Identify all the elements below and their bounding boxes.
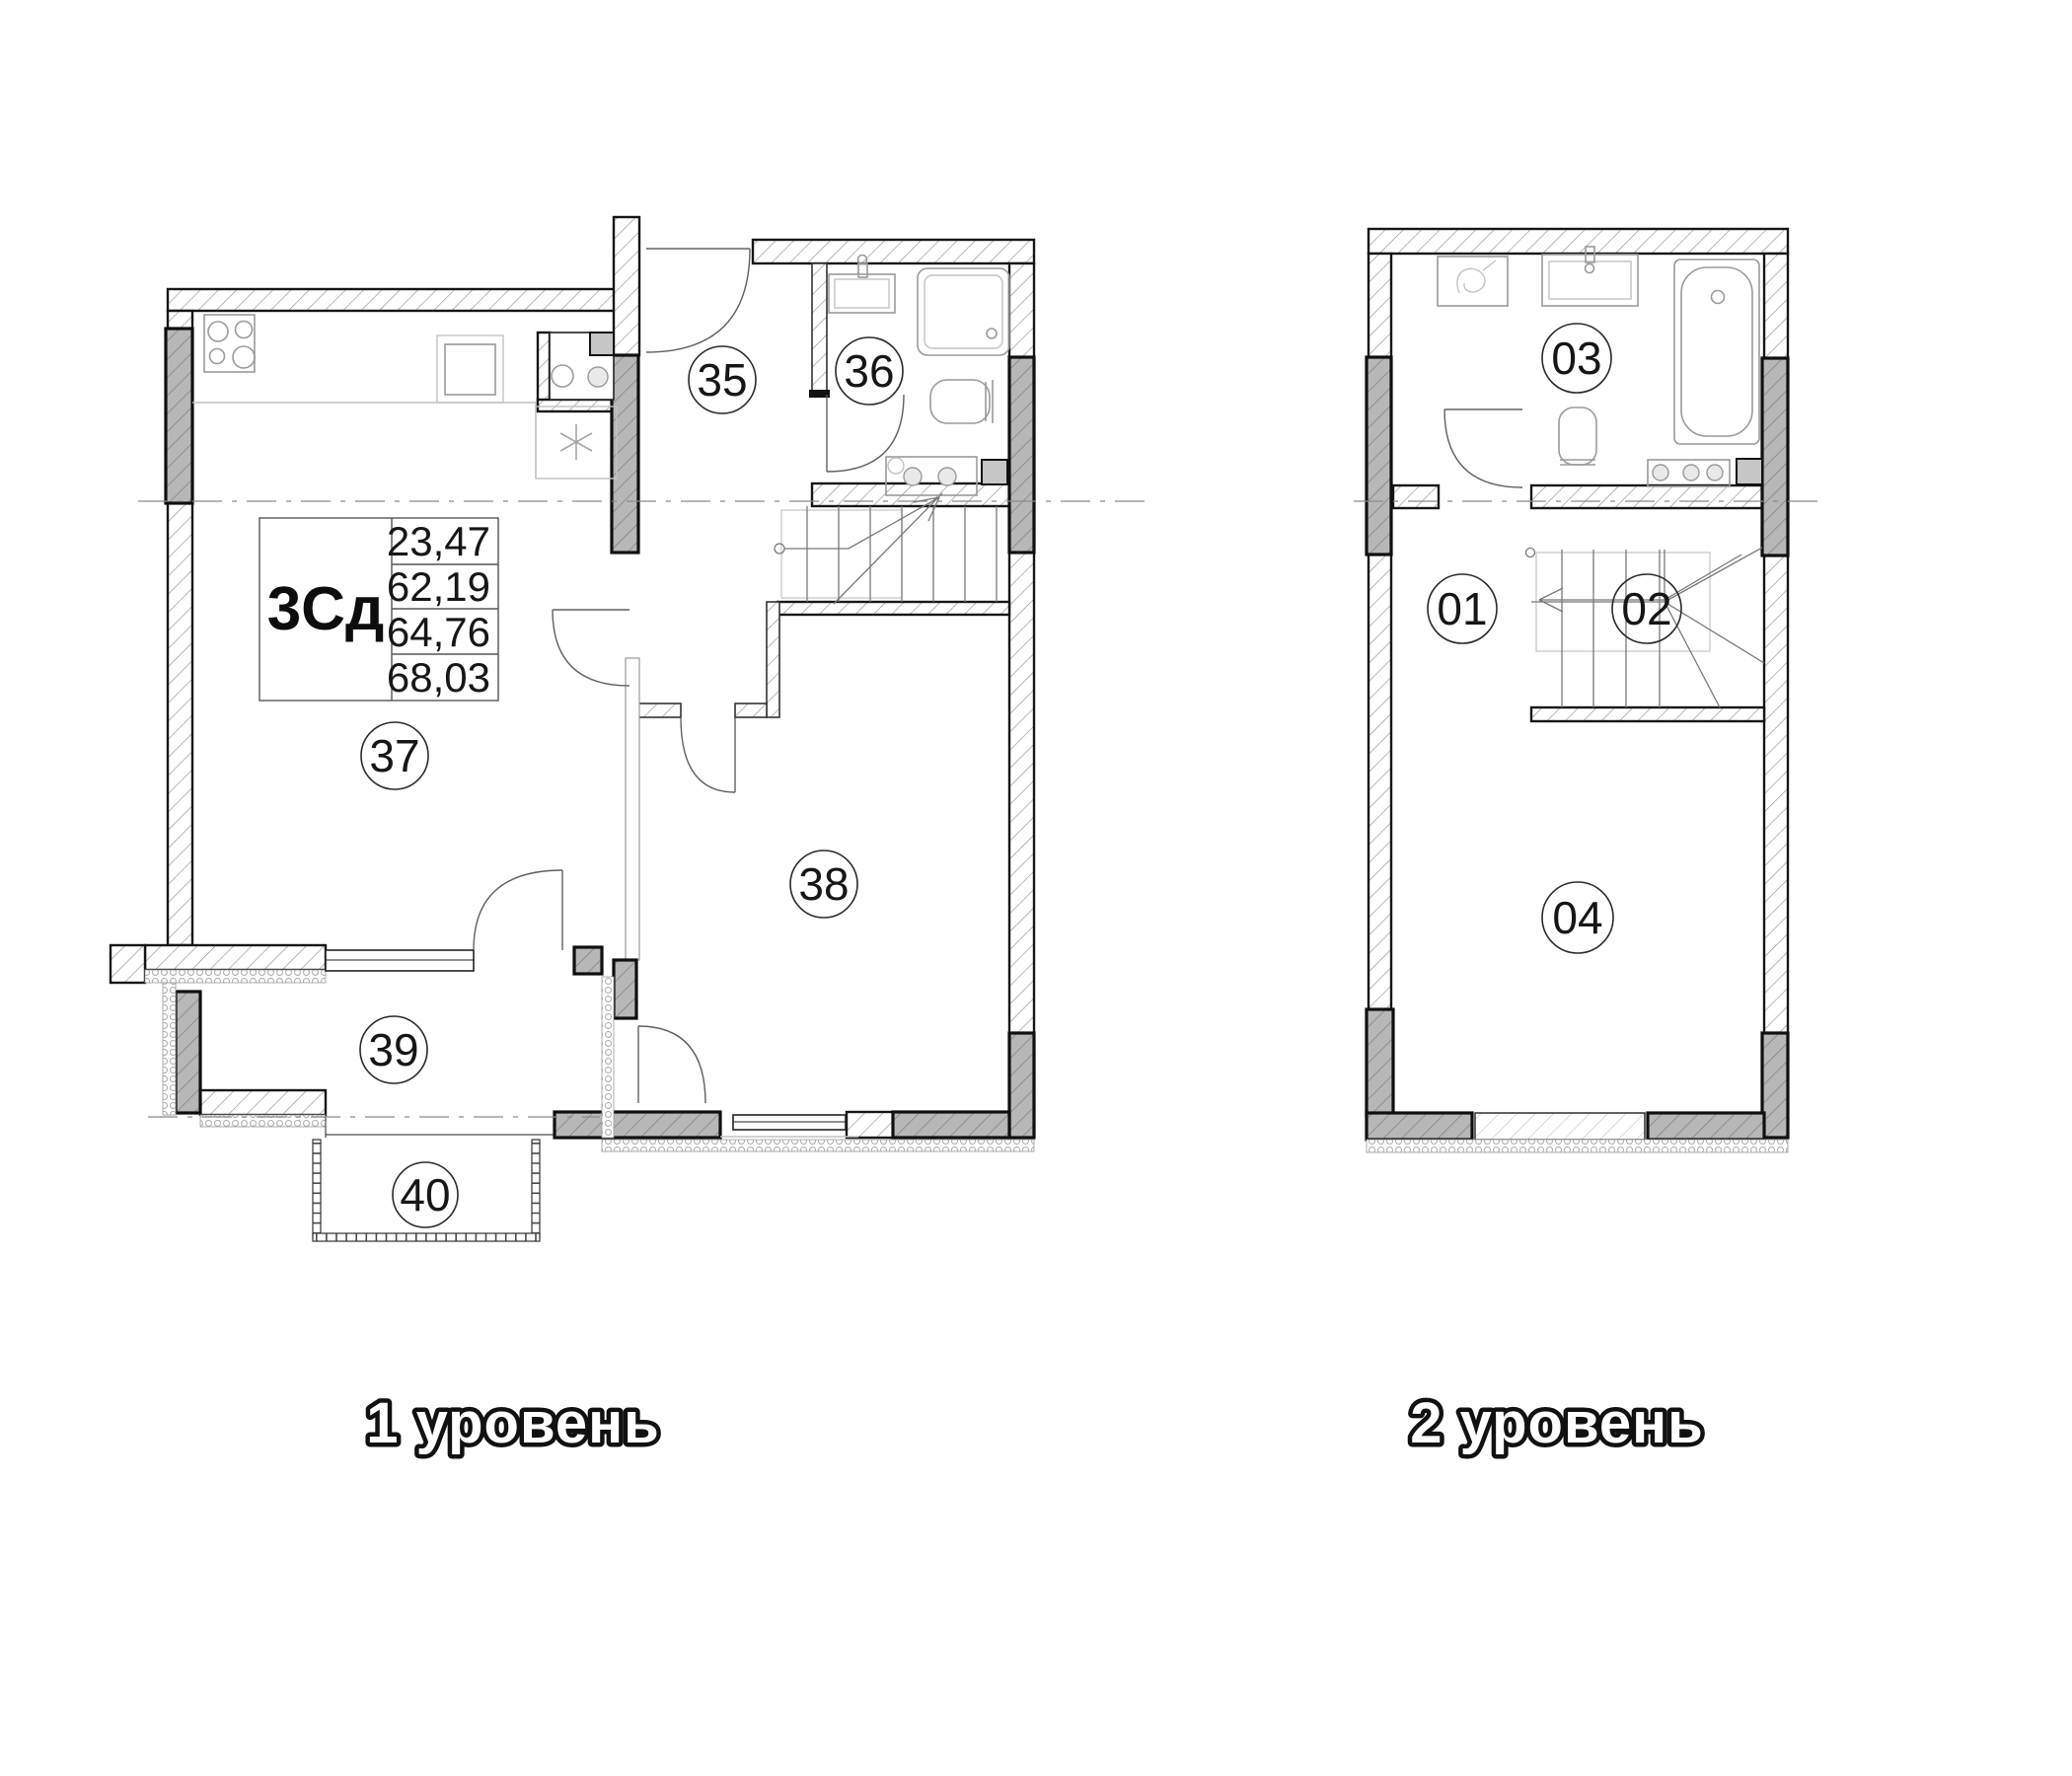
wall-segment [777,602,1009,615]
wall-segment [767,602,779,717]
area-value: 23,47 [387,518,490,564]
level-1-label: 1 уровень [366,1391,660,1455]
wall-segment [753,240,1034,263]
wall-segment [847,1112,893,1138]
room-number: 39 [368,1024,418,1075]
wall-segment [1475,1113,1645,1140]
wall-segment [1369,254,1391,357]
wall-segment [200,1090,326,1115]
door-swing [681,717,735,792]
room-number-badge-02: 02 [1612,574,1681,643]
door-swing [474,870,562,950]
pier-segment [176,992,200,1113]
wall-segment [614,217,639,355]
wall-segment [1009,263,1034,357]
pier-segment [1648,1113,1764,1140]
shower-icon [918,268,1009,355]
wall-segment [1531,485,1764,508]
pier-segment [1367,1009,1393,1115]
wall-segment [168,311,192,329]
toilet-icon [1559,407,1596,465]
room-number-badge-35: 35 [689,346,756,413]
piers-level-1 [166,329,1034,1138]
insulation-band [163,983,176,1115]
wall-segment [538,400,614,411]
wall-segment [1531,707,1764,721]
wall-segment [735,703,767,717]
wall-segment [168,503,192,945]
door-swing [553,610,629,686]
insulation-band [1367,1140,1788,1152]
level-2-label: 2 уровень [1410,1391,1704,1455]
wall-segment [1369,555,1391,1009]
pier-segment [1367,357,1391,555]
insulation-band [602,977,614,1138]
wall-segment [812,263,827,392]
room-number: 04 [1552,892,1602,943]
bathroom-sink-icon [1542,247,1638,306]
room-number: 35 [697,354,747,406]
oven-icon [437,335,503,403]
pier-segment [1009,1033,1034,1138]
pier-segment [555,1112,720,1138]
pier-segment [893,1112,1009,1138]
piers-level-2 [1367,357,1788,1140]
pier-segment [1762,1033,1788,1138]
room-number-badge-37: 37 [361,722,428,789]
room-number-badge-01: 01 [1428,574,1497,643]
stairs-icon [775,493,997,604]
room-number: 40 [400,1169,450,1221]
area-value: 68,03 [387,654,490,701]
partition-wall [626,658,639,960]
pier-segment [1762,358,1788,555]
area-value: 64,76 [387,609,490,655]
wall-segment [1393,485,1439,508]
entrance-door-swing [646,249,750,352]
door-swing [1444,409,1522,487]
wall-segment [1764,555,1788,1033]
insulation-band [602,1140,1034,1151]
area-value: 62,19 [387,563,490,610]
wall-segment [1009,553,1034,1033]
room-number: 03 [1551,333,1601,384]
floorplan-page: 3Сд 23,47 62,19 64,76 68,03 35 36 37 38 … [0,0,2072,1776]
wall-segment [1764,254,1788,358]
vent-asterisk-icon [560,424,592,460]
room-number: 02 [1621,583,1671,634]
room-number-badge-39: 39 [360,1016,427,1083]
info-table: 3Сд 23,47 62,19 64,76 68,03 [259,518,498,701]
level-2-plan: 01 02 03 04 2 уровень [1354,229,1823,1455]
washing-machine-icon [1438,257,1508,306]
pier-segment [612,355,638,553]
bathtub-icon [1674,259,1759,444]
room-number: 38 [798,858,849,910]
wall-segment [145,945,326,970]
wall-segment [111,945,145,983]
kitchen-counter-line [192,403,617,479]
floor-plan-canvas: 3Сд 23,47 62,19 64,76 68,03 35 36 37 38 … [0,0,2072,1776]
room-number: 36 [844,345,894,397]
room-number-badge-03: 03 [1542,324,1611,393]
wall-segment [168,289,617,311]
room-number: 37 [369,730,419,781]
door-swing [827,395,904,472]
kitchen-sink-icon [550,333,614,400]
room-number-badge-04: 04 [1542,882,1613,953]
room-number-badge-38: 38 [790,851,857,918]
insulation-band [145,970,326,983]
room-number: 01 [1437,583,1487,634]
pier-segment [166,329,192,503]
pier-segment [574,947,602,974]
door-swing [638,1026,705,1103]
room-number-badge-40: 40 [393,1162,458,1227]
room-number-badge-36: 36 [836,337,903,405]
toilet-icon [930,380,993,423]
stove-icon [204,315,255,372]
laundry-counter-icon [1648,459,1762,486]
level-1-plan: 3Сд 23,47 62,19 64,76 68,03 35 36 37 38 … [111,217,1145,1455]
wall-segment [538,333,550,409]
wall-segment [1369,229,1788,254]
pier-segment [1009,357,1034,553]
pier-segment [614,960,636,1018]
plan-code: 3Сд [267,575,385,643]
pier-segment [1367,1113,1472,1140]
